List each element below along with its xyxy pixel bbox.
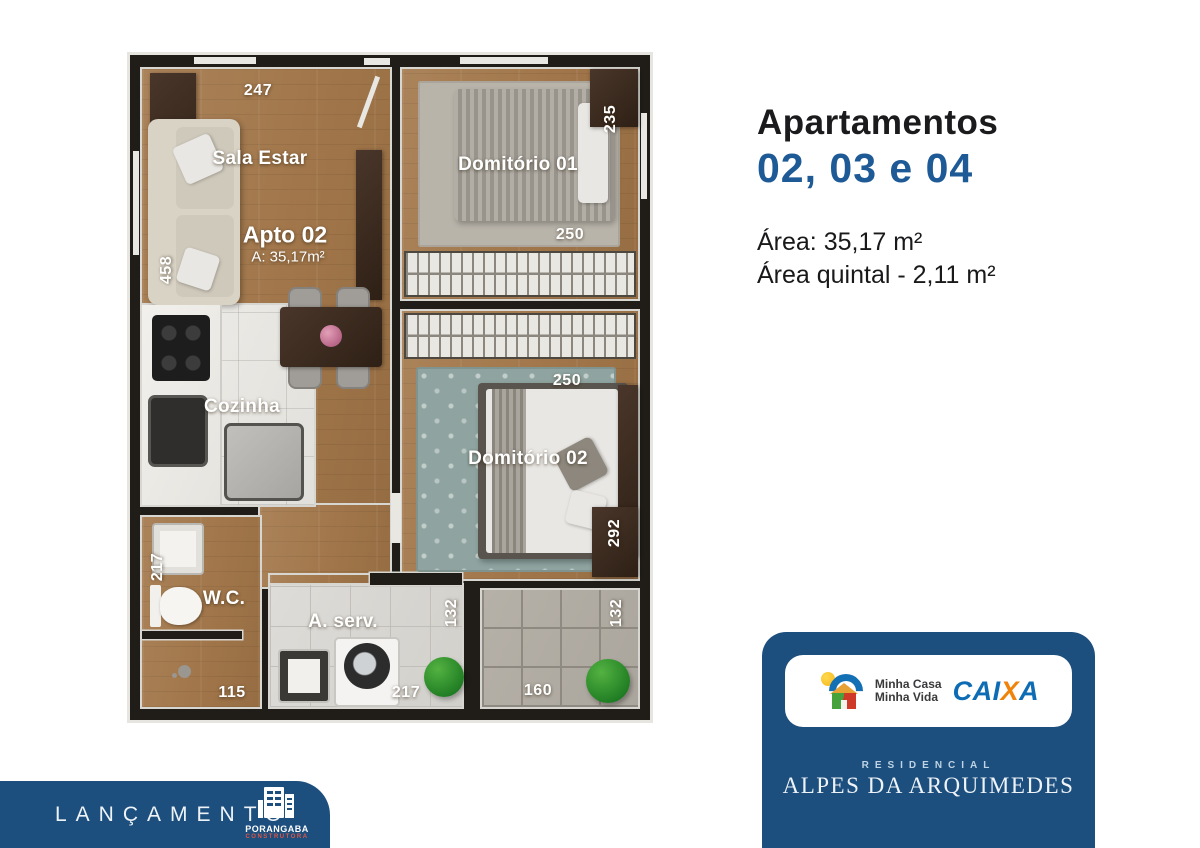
- dim-patio-bottom: 160: [524, 682, 552, 700]
- dim-dorm1-right: 235: [602, 105, 620, 133]
- area-total: Área: 35,17 m²: [757, 226, 998, 259]
- wall-aserv-top: [370, 573, 462, 585]
- label-dorm2: Domitório 02: [468, 448, 588, 470]
- development-name: ALPES DA ARQUIMEDES: [762, 773, 1095, 799]
- mcmv-line2: Minha Vida: [875, 691, 942, 704]
- window-top-sala: [194, 57, 256, 64]
- label-apto-area: A: 35,17m²: [251, 249, 324, 266]
- page-title: Apartamentos: [757, 103, 998, 143]
- toilet: [160, 587, 202, 625]
- mcmv-house-icon: [818, 669, 868, 713]
- flower-vase: [320, 325, 342, 347]
- label-sala: Sala Estar: [213, 148, 308, 170]
- builder-name: PORANGABA: [240, 824, 314, 834]
- closet-dorm2: [404, 313, 636, 359]
- unit-numbers: 02, 03 e 04: [757, 145, 998, 192]
- dim-aserv-bottom: 217: [392, 684, 420, 702]
- window-left-sala: [133, 151, 139, 255]
- dim-dorm1-closet: 250: [556, 226, 584, 244]
- closet-dorm1: [404, 251, 636, 297]
- caixa-x: X: [1001, 676, 1020, 706]
- launch-banner: LANÇAMENTO PORANGABA CONSTRUTORA: [0, 781, 330, 848]
- dim-wc-left: 217: [149, 553, 167, 581]
- area-quintal: Área quintal - 2,11 m²: [757, 259, 998, 292]
- tv-panel: [356, 150, 382, 300]
- label-apto: Apto 02: [243, 222, 327, 249]
- logos-pill: Minha Casa Minha Vida CAIXA: [785, 655, 1072, 727]
- caixa-part: CAI: [953, 676, 1001, 706]
- label-aserv: A. serv.: [308, 611, 378, 633]
- window-right-dorm1: [641, 113, 647, 199]
- bush-icon: [586, 659, 630, 703]
- laundry-tank: [278, 649, 330, 703]
- label-cozinha: Cozinha: [204, 396, 280, 418]
- wall-wc-divider: [142, 631, 242, 639]
- floor-plan: 247 458 235 250 250 292 217 115 217 132 …: [130, 55, 650, 720]
- residencial-label: RESIDENCIAL: [762, 760, 1095, 771]
- builder-logo: PORANGABA CONSTRUTORA: [240, 786, 314, 840]
- info-panel: Apartamentos 02, 03 e 04 Área: 35,17 m² …: [757, 103, 998, 292]
- dim-aserv-right: 132: [443, 599, 461, 627]
- flyer-page: 247 458 235 250 250 292 217 115 217 132 …: [0, 0, 1200, 848]
- dim-patio-right: 132: [608, 599, 626, 627]
- door-dorm2: [391, 493, 401, 543]
- caixa-logo: CAIXA: [953, 676, 1040, 707]
- entry-threshold: [364, 58, 390, 65]
- stove: [152, 315, 210, 381]
- brand-card: Minha Casa Minha Vida CAIXA RESIDENCIAL …: [762, 632, 1095, 848]
- label-wc: W.C.: [203, 588, 245, 610]
- kitchen-sink: [148, 395, 208, 467]
- shower-icon: [178, 665, 191, 678]
- dim-sala-left: 458: [158, 256, 176, 284]
- label-dorm1: Domitório 01: [458, 154, 578, 176]
- mcmv-logo: Minha Casa Minha Vida: [818, 669, 942, 713]
- building-icon: [254, 786, 300, 818]
- builder-sub: CONSTRUTORA: [240, 834, 314, 840]
- bed-dorm2-runner: [492, 389, 526, 553]
- bush-icon: [424, 657, 464, 697]
- window-top-dorm1: [460, 57, 548, 64]
- dim-dorm2-closet: 250: [553, 372, 581, 390]
- caixa-part: A: [1019, 676, 1039, 706]
- fridge: [224, 423, 304, 501]
- washer-door: [344, 643, 390, 689]
- dim-sala-top: 247: [244, 82, 272, 100]
- dim-dorm2-right: 292: [606, 519, 624, 547]
- dim-wc-bottom: 115: [218, 684, 245, 702]
- door-icon: [841, 700, 847, 709]
- mcmv-line1: Minha Casa: [875, 678, 942, 691]
